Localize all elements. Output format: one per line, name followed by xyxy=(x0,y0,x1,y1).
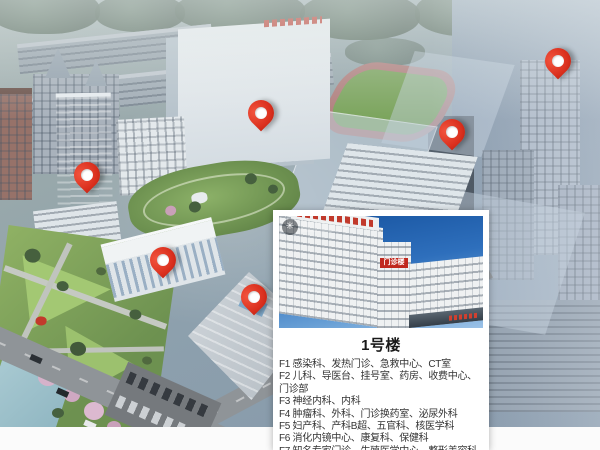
red-sculpture xyxy=(35,316,47,326)
building-photo: 门诊楼 ✳ xyxy=(279,216,483,328)
floor-line: F1 感染科、发热门诊、急救中心、CT室 xyxy=(279,359,483,371)
floor-line: F2 儿科、导医台、挂号室、药房、收费中心、门诊部 xyxy=(279,371,483,396)
floor-line: F6 消化内镜中心、康复科、保健科 xyxy=(279,433,483,445)
watermark-logo-icon: ✳ xyxy=(282,219,298,235)
photo-building-right-wing xyxy=(409,256,483,328)
floor-directory: F1 感染科、发热门诊、急救中心、CT室 F2 儿科、导医台、挂号室、药房、收费… xyxy=(279,359,483,450)
hospital-navigation-screen: 门诊楼 ✳ 1号楼 F1 感染科、发热门诊、急救中心、CT室 F2 儿科、导医台… xyxy=(0,0,600,450)
building-title: 1号楼 xyxy=(279,328,483,359)
watermark-text-blur xyxy=(301,222,347,232)
floor-line: F4 肿瘤科、外科、门诊换药室、泌尿外科 xyxy=(279,409,483,421)
photo-building-tower xyxy=(377,242,411,328)
outpatient-sign: 门诊楼 xyxy=(380,258,408,268)
floor-line: F5 妇产科、产科B超、五官科、核医学科 xyxy=(279,421,483,433)
building-info-card: 门诊楼 ✳ 1号楼 F1 感染科、发热门诊、急救中心、CT室 F2 儿科、导医台… xyxy=(273,210,489,450)
floor-line: F3 神经内科、内科 xyxy=(279,396,483,408)
floor-line: F7 知名专家门诊、生殖医学中心、整形美容科 xyxy=(279,446,483,450)
